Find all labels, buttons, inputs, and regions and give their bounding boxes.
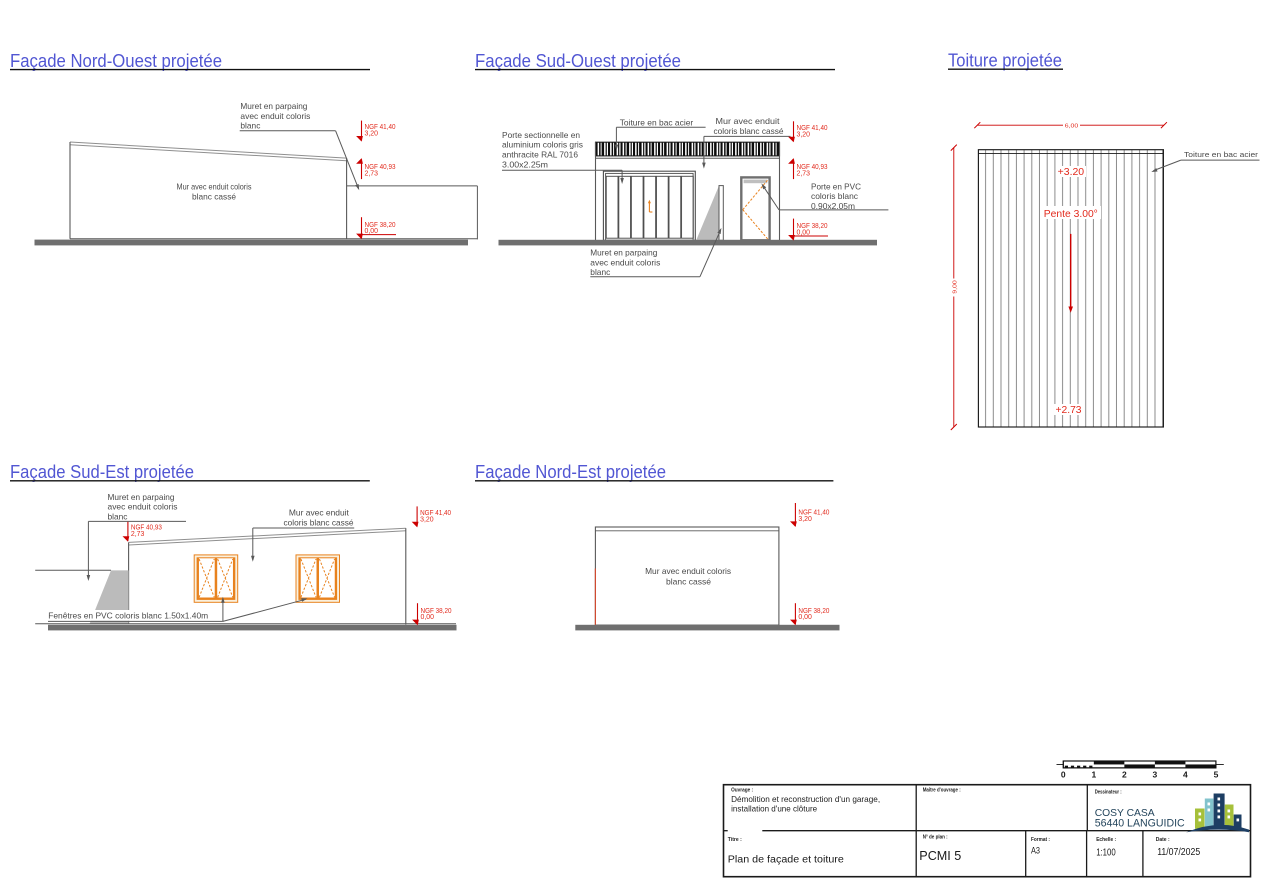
svg-text:Plan de façade et toiture: Plan de façade et toiture (728, 854, 844, 865)
svg-text:installation d'une clôture: installation d'une clôture (731, 804, 817, 814)
svg-text:Pente 3.00°: Pente 3.00° (1044, 209, 1098, 220)
svg-text:N° de plan :: N° de plan : (923, 835, 948, 841)
svg-text:Toiture projetée: Toiture projetée (948, 51, 1062, 71)
svg-text:1:100: 1:100 (1096, 848, 1116, 859)
svg-text:avec enduit coloris: avec enduit coloris (590, 257, 660, 267)
svg-text:+3.20: +3.20 (1058, 167, 1085, 178)
svg-text:Porte sectionnelle en: Porte sectionnelle en (502, 130, 580, 140)
svg-text:3,20: 3,20 (798, 516, 812, 523)
svg-text:Façade Nord-Est projetée: Façade Nord-Est projetée (475, 462, 666, 482)
svg-text:Façade Sud-Est projetée: Façade Sud-Est projetée (10, 462, 194, 482)
svg-text:Date :: Date : (1156, 837, 1170, 843)
svg-text:coloris blanc: coloris blanc (811, 191, 859, 201)
svg-text:3,20: 3,20 (420, 516, 434, 523)
svg-text:0,00: 0,00 (421, 614, 435, 621)
svg-text:Ouvrage :: Ouvrage : (731, 788, 753, 794)
svg-text:5: 5 (1214, 770, 1219, 780)
svg-text:blanc: blanc (240, 121, 261, 131)
svg-text:Toiture en bac acier: Toiture en bac acier (620, 118, 694, 128)
svg-text:Démolition et reconstruction d: Démolition et reconstruction d'un garage… (731, 794, 880, 804)
svg-text:56440 LANGUIDIC: 56440 LANGUIDIC (1095, 817, 1185, 829)
svg-text:coloris blanc cassé: coloris blanc cassé (284, 517, 354, 527)
svg-text:2: 2 (1122, 770, 1127, 780)
svg-text:Format :: Format : (1031, 837, 1050, 843)
svg-text:Mur avec enduit: Mur avec enduit (289, 508, 350, 518)
svg-text:3,20: 3,20 (365, 131, 379, 138)
svg-text:4: 4 (1183, 770, 1188, 780)
svg-text:Façade Nord-Ouest projetée: Façade Nord-Ouest projetée (10, 51, 222, 71)
svg-text:0,00: 0,00 (798, 614, 812, 621)
svg-text:Titre :: Titre : (728, 837, 742, 843)
svg-text:blanc cassé: blanc cassé (192, 191, 236, 201)
svg-text:Mur avec enduit coloris: Mur avec enduit coloris (645, 566, 731, 576)
svg-text:Muret en parpaing: Muret en parpaing (590, 248, 657, 258)
svg-text:Toiture en bac acier: Toiture en bac acier (1184, 150, 1259, 159)
svg-text:Mur avec enduit: Mur avec enduit (716, 116, 781, 126)
svg-text:2,73: 2,73 (131, 531, 145, 538)
svg-text:11/07/2025: 11/07/2025 (1157, 847, 1200, 858)
svg-text:Muret en parpaing: Muret en parpaing (240, 101, 307, 111)
svg-text:Echelle :: Echelle : (1096, 837, 1116, 843)
svg-text:PCMI 5: PCMI 5 (919, 848, 961, 863)
svg-text:Mur avec enduit coloris: Mur avec enduit coloris (177, 182, 252, 192)
svg-text:9,00: 9,00 (952, 280, 958, 294)
svg-text:Dessinateur :: Dessinateur : (1095, 790, 1122, 796)
svg-text:2,73: 2,73 (365, 171, 379, 178)
svg-text:avec enduit coloris: avec enduit coloris (108, 502, 178, 512)
svg-text:3: 3 (1153, 770, 1158, 780)
svg-text:2,73: 2,73 (797, 171, 811, 178)
svg-text:+2.73: +2.73 (1056, 405, 1082, 416)
svg-text:Façade Sud-Ouest projetée: Façade Sud-Ouest projetée (475, 51, 681, 71)
svg-text:A3: A3 (1031, 846, 1040, 857)
svg-text:blanc: blanc (108, 512, 129, 522)
svg-text:Maître d'ouvrage :: Maître d'ouvrage : (923, 788, 961, 794)
svg-text:blanc cassé: blanc cassé (666, 576, 711, 586)
svg-text:3.00x2.25m: 3.00x2.25m (502, 159, 548, 169)
svg-text:3,20: 3,20 (797, 131, 811, 138)
svg-text:blanc: blanc (590, 267, 611, 277)
svg-text:aluminium coloris gris: aluminium coloris gris (502, 140, 583, 150)
svg-text:1: 1 (1091, 770, 1096, 780)
svg-text:avec enduit coloris: avec enduit coloris (240, 111, 310, 121)
svg-text:Porte en PVC: Porte en PVC (811, 181, 861, 191)
svg-text:0: 0 (1061, 770, 1066, 780)
svg-text:Muret en parpaing: Muret en parpaing (108, 492, 175, 502)
svg-text:Fenêtres en PVC coloris blanc: Fenêtres en PVC coloris blanc 1.50x1.40m (48, 611, 208, 621)
svg-text:coloris blanc cassé: coloris blanc cassé (714, 126, 784, 136)
svg-text:6,00: 6,00 (1065, 123, 1079, 129)
svg-text:anthracite RAL 7016: anthracite RAL 7016 (502, 150, 578, 160)
